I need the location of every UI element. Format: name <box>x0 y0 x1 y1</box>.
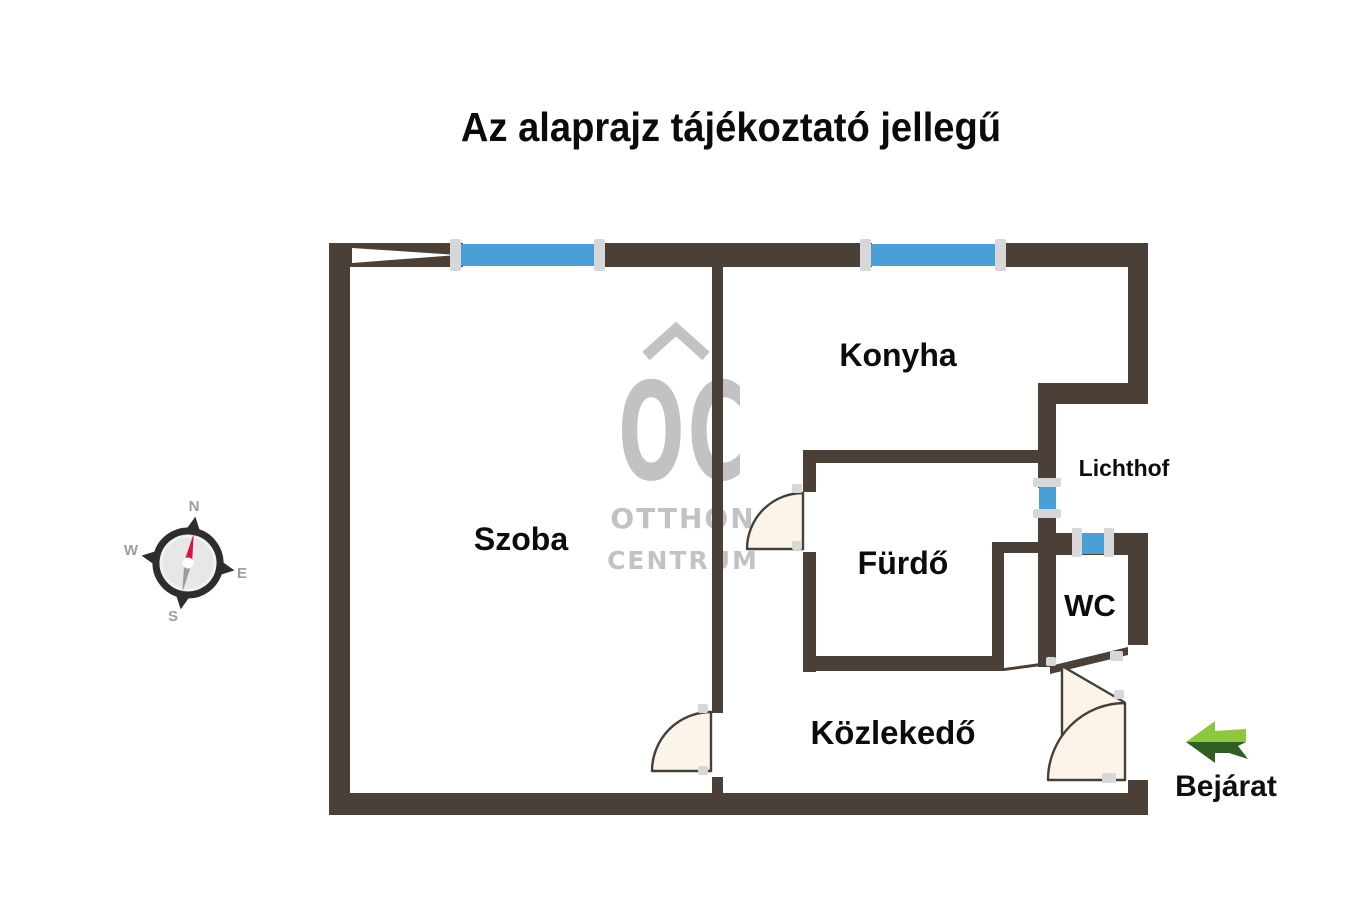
wall-lichthof-west-upper <box>1038 404 1056 488</box>
window-frame <box>860 239 871 271</box>
arrow-bottom-half <box>1186 742 1248 763</box>
room-label-szoba: Szoba <box>474 521 568 557</box>
door-szoba <box>652 712 711 771</box>
room-label-lichthof: Lichthof <box>1079 455 1170 481</box>
wall-bottom <box>329 793 1148 815</box>
wall-duct-top <box>992 542 1055 553</box>
door-hinge <box>698 704 708 713</box>
door-hinge <box>698 766 708 775</box>
watermark-roof-icon <box>646 329 706 356</box>
door-hinge <box>792 484 802 493</box>
wall-right-upper <box>1128 243 1148 404</box>
room-label-kozlekedo: Közlekedő <box>810 714 975 751</box>
window-konyha <box>871 244 997 266</box>
wall-divider-upper <box>712 267 723 713</box>
compass-label-south: S <box>168 608 178 625</box>
arrow-top-half <box>1186 721 1246 742</box>
window-frame <box>1033 509 1061 518</box>
room-label-wc: WC <box>1064 588 1116 623</box>
watermark-line2: CENTRUM <box>607 546 759 575</box>
compass-body <box>134 509 242 617</box>
door-hinge <box>1046 657 1056 666</box>
wall-divider-lower <box>712 777 723 793</box>
wall-left <box>329 243 350 815</box>
entrance-arrow-icon <box>1186 721 1248 763</box>
wall-wc-right <box>1128 533 1148 645</box>
window-frame <box>1104 528 1114 557</box>
window-szoba <box>459 244 596 266</box>
wall-duct-left <box>992 542 1004 667</box>
window-frame <box>450 239 461 271</box>
watermark-initials: OC <box>618 355 748 512</box>
door-hinge <box>1114 690 1124 699</box>
door-hinge <box>1110 651 1123 661</box>
room-label-konyha: Konyha <box>839 337 957 373</box>
wall-furdo-left-lower <box>803 552 816 672</box>
wall-furdo-top <box>803 450 1040 463</box>
compass-label-north: N <box>189 498 200 515</box>
wall-corner-cap <box>329 245 351 267</box>
door-hinge <box>1102 773 1116 783</box>
door-entrance <box>1048 703 1125 780</box>
wall-top-middle <box>596 243 872 267</box>
page-title: Az alaprajz tájékoztató jellegű <box>461 105 1001 151</box>
window-frame <box>594 239 605 271</box>
wall-furdo-left-upper <box>803 450 816 492</box>
watermark-line1: OTTHON <box>610 502 755 535</box>
floor-plan-drawing: Az alaprajz tájékoztató jellegű OC OTTHO… <box>0 0 1360 900</box>
window-wc <box>1081 533 1105 554</box>
wall-lichthof-top <box>1038 383 1148 404</box>
floor-plan-page: Az alaprajz tájékoztató jellegű OC OTTHO… <box>0 0 1360 900</box>
window-lichthof <box>1039 487 1056 510</box>
door-hinge <box>792 541 802 550</box>
compass-label-west: W <box>124 542 139 559</box>
entrance-label: Bejárat <box>1175 770 1277 803</box>
watermark-logo: OC OTTHON CENTRUM <box>607 329 759 575</box>
window-frame <box>1033 478 1061 487</box>
compass-label-east: E <box>237 565 247 582</box>
wall-top-right <box>1000 243 1148 267</box>
window-frame <box>995 239 1006 271</box>
window-frame <box>1072 528 1082 557</box>
room-label-furdo: Fürdő <box>858 545 949 581</box>
compass-rose: N W E S <box>124 498 247 625</box>
wall-furdo-bottom <box>803 656 1004 671</box>
